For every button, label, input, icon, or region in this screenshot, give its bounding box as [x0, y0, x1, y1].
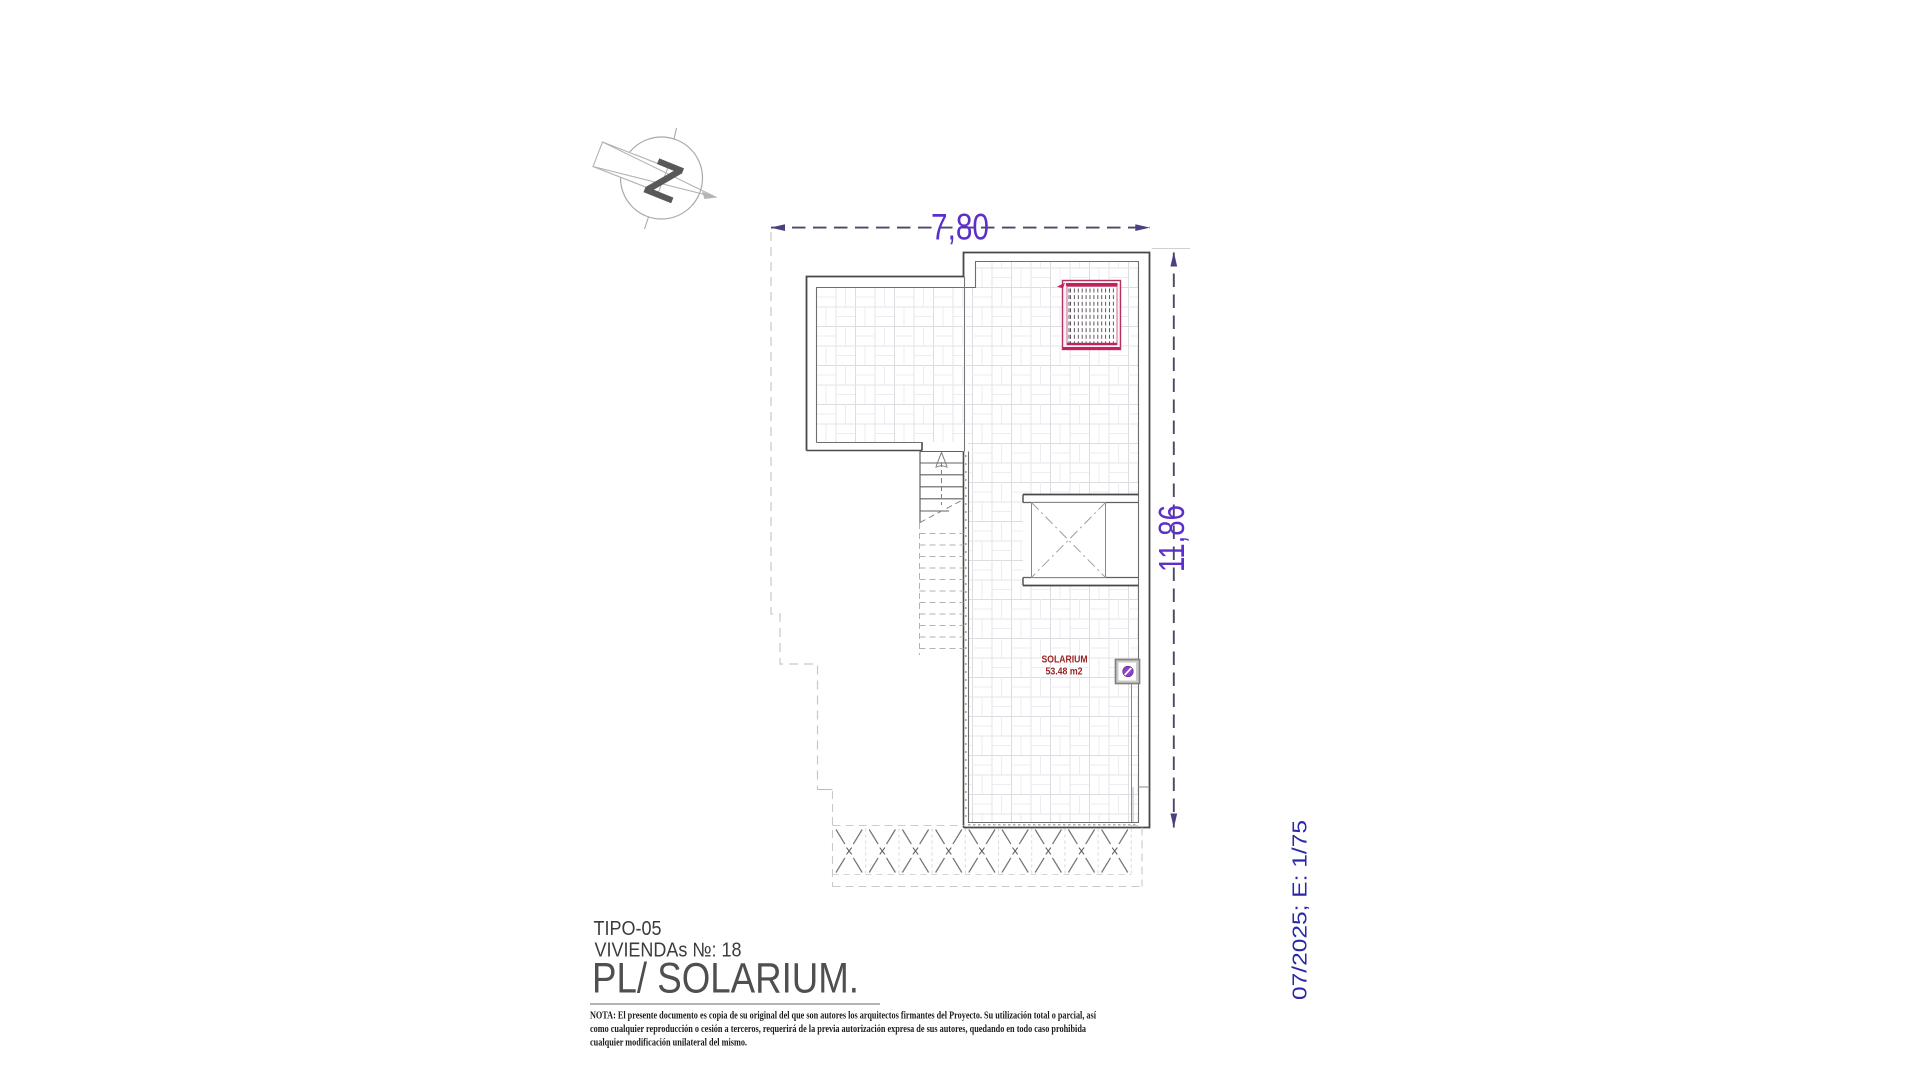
svg-text:7,80: 7,80	[931, 207, 989, 248]
svg-text:cualquier modificación unilate: cualquier modificación unilateral del mi…	[590, 1038, 747, 1049]
svg-text:07/2025; E: 1/75: 07/2025; E: 1/75	[1290, 820, 1312, 1000]
svg-text:53.48 m2: 53.48 m2	[1046, 667, 1083, 678]
svg-text:NOTA: El presente documento es: NOTA: El presente documento es copia de …	[590, 1011, 1097, 1022]
svg-text:como cualquier reproducción o: como cualquier reproducción o cesión a t…	[590, 1024, 1087, 1035]
svg-text:TIPO-05: TIPO-05	[594, 918, 662, 940]
svg-text:11,86: 11,86	[1151, 505, 1192, 572]
svg-text:PL/ SOLARIUM.: PL/ SOLARIUM.	[592, 955, 859, 1003]
svg-text:SOLARIUM: SOLARIUM	[1042, 654, 1088, 666]
